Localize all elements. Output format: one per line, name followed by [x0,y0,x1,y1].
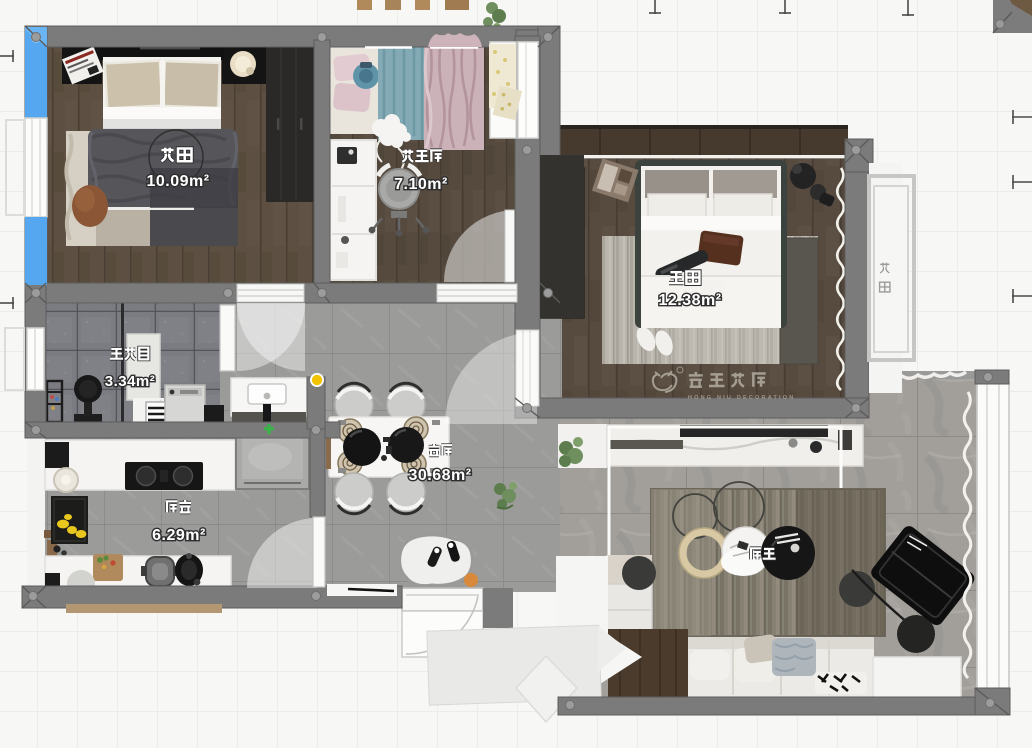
svg-text:7.10m²: 7.10m² [394,176,448,193]
svg-text:6.29m²: 6.29m² [152,527,206,544]
svg-text:10.09m²: 10.09m² [146,173,209,190]
svg-text:3.34m²: 3.34m² [105,373,156,390]
svg-text:30.68m²: 30.68m² [408,467,471,484]
svg-text:12.38m²: 12.38m² [658,292,721,309]
svg-text:HONG NIU DECORATION: HONG NIU DECORATION [688,395,795,401]
